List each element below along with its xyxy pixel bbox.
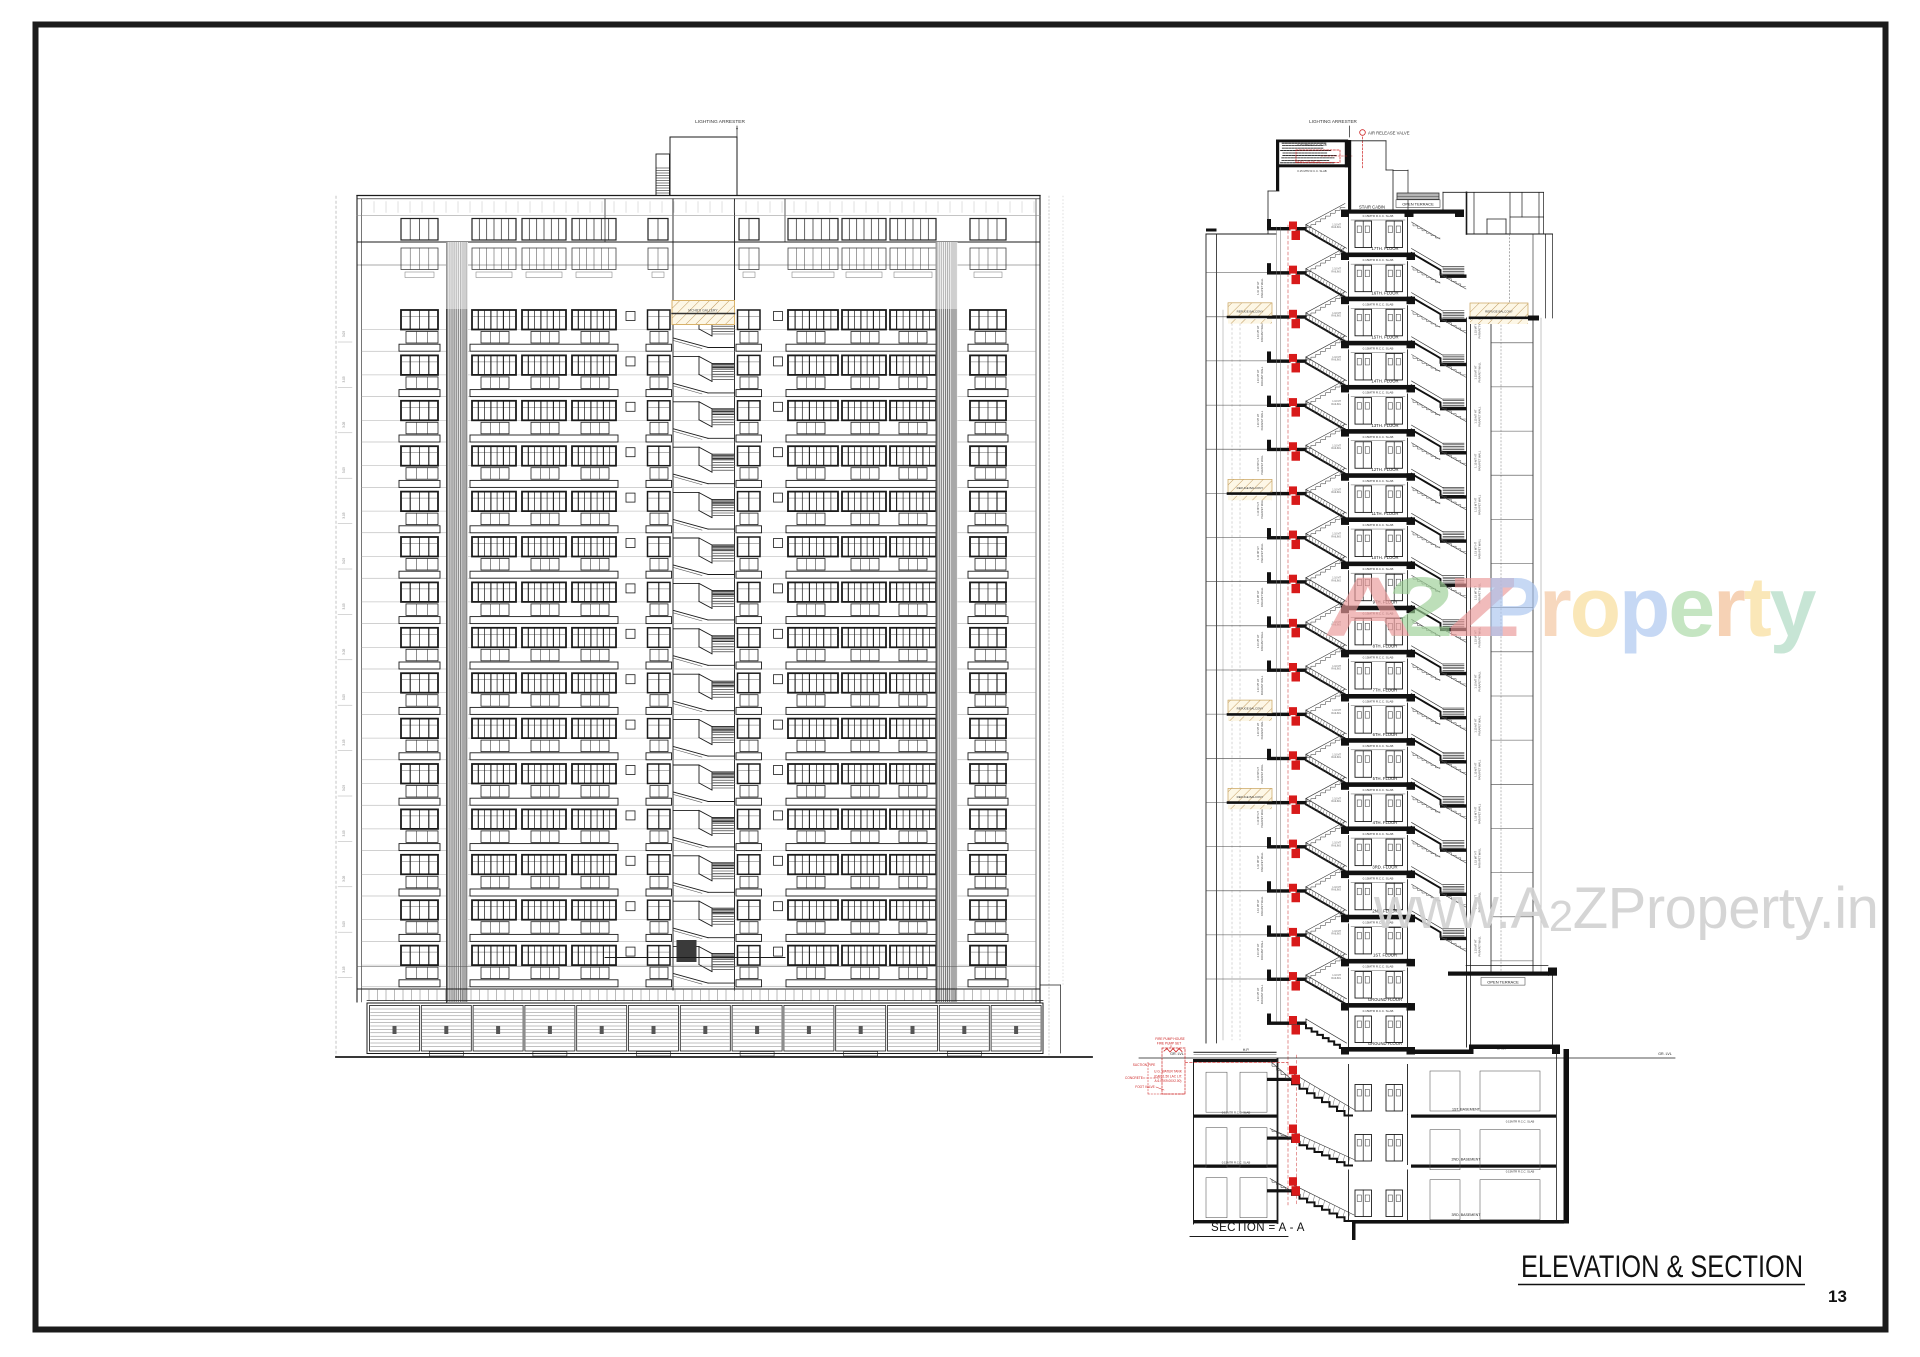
svg-text:LIGHTING ARRESTER: LIGHTING ARRESTER — [695, 119, 745, 125]
svg-text:1.15 MT HT: 1.15 MT HT — [1474, 542, 1478, 556]
svg-text:CONCRETE: CONCRETE — [1125, 1076, 1143, 1080]
svg-text:0.15MTR R.C.C. SLAB: 0.15MTR R.C.C. SLAB — [1222, 1111, 1251, 1115]
svg-text:0.15MTR R.C.C. SLAB: 0.15MTR R.C.C. SLAB — [1363, 214, 1394, 218]
svg-text:PARAPET WALL: PARAPET WALL — [1478, 759, 1482, 780]
svg-text:1.10 MT HT: 1.10 MT HT — [1256, 943, 1260, 957]
svg-text:PARAPET WALL: PARAPET WALL — [1260, 499, 1264, 519]
svg-text:REFUGE BALCONY: REFUGE BALCONY — [1237, 707, 1264, 711]
svg-text:1ST. FLOOR: 1ST. FLOOR — [1373, 953, 1397, 958]
svg-text:OPEN TERRACE: OPEN TERRACE — [1402, 202, 1434, 207]
svg-text:13TH. FLOOR: 13TH. FLOOR — [1372, 423, 1399, 428]
svg-text:REFUGE BALCONY: REFUGE BALCONY — [1237, 795, 1264, 799]
svg-text:▾: ▾ — [736, 126, 738, 131]
svg-text:MCHB'S GALLERY: MCHB'S GALLERY — [688, 309, 718, 313]
svg-text:3.05: 3.05 — [342, 467, 346, 473]
svg-text:1.15 MT HT: 1.15 MT HT — [1474, 806, 1478, 820]
svg-text:GROUND FLOOR: GROUND FLOOR — [1368, 997, 1402, 1002]
svg-text:PARAPET WALL: PARAPET WALL — [1260, 719, 1264, 739]
svg-text:0.15MTR R.C.C. SLAB: 0.15MTR R.C.C. SLAB — [1363, 435, 1394, 439]
svg-text:3.05: 3.05 — [342, 921, 346, 927]
svg-text:2ND. BASEMENT: 2ND. BASEMENT — [1452, 1158, 1482, 1162]
svg-text:1.15 MT HT: 1.15 MT HT — [1474, 497, 1478, 511]
svg-text:SUCTION PIPE: SUCTION PIPE — [1133, 1063, 1156, 1067]
svg-text:1.15 MT HT: 1.15 MT HT — [1474, 762, 1478, 776]
svg-text:0.15MTR R.C.C. SLAB: 0.15MTR R.C.C. SLAB — [1363, 258, 1394, 262]
svg-text:3.05: 3.05 — [342, 830, 346, 836]
svg-text:6TH. FLOOR: 6TH. FLOOR — [1373, 732, 1398, 737]
svg-text:PARAPET WALL: PARAPET WALL — [1260, 984, 1264, 1004]
svg-text:3.05: 3.05 — [342, 966, 346, 972]
svg-text:0.15 MTR R.C.C. SLAB: 0.15 MTR R.C.C. SLAB — [1297, 169, 1327, 173]
svg-text:0.15MTR R.C.C. SLAB: 0.15MTR R.C.C. SLAB — [1363, 700, 1394, 704]
svg-text:11TH. FLOOR: 11TH. FLOOR — [1372, 511, 1399, 516]
svg-text:SECTION = A - A: SECTION = A - A — [1211, 1222, 1305, 1234]
svg-text:14TH. FLOOR: 14TH. FLOOR — [1372, 379, 1399, 384]
svg-text:GR. LVL: GR. LVL — [1170, 1052, 1184, 1056]
svg-text:PARAPET WALL: PARAPET WALL — [1260, 587, 1264, 607]
svg-text:3.05: 3.05 — [342, 331, 346, 337]
svg-text:7TH. FLOOR: 7TH. FLOOR — [1373, 688, 1398, 693]
svg-text:1ST. BASEMENT: 1ST. BASEMENT — [1452, 1108, 1481, 1112]
svg-text:0.15MTR R.C.C. SLAB: 0.15MTR R.C.C. SLAB — [1363, 832, 1394, 836]
svg-text:1.10 MT HT: 1.10 MT HT — [1256, 590, 1260, 604]
svg-text:PARAPET WALL: PARAPET WALL — [1260, 454, 1264, 474]
svg-text:B.B.WT. 2.00 LAC LIT.: B.B.WT. 2.00 LAC LIT. — [1295, 160, 1321, 164]
svg-text:12TH. FLOOR: 12TH. FLOOR — [1372, 467, 1399, 472]
svg-text:1.10 MT HT: 1.10 MT HT — [1256, 458, 1260, 472]
svg-text:0.15MTR R.C.C. SLAB: 0.15MTR R.C.C. SLAB — [1363, 302, 1394, 306]
svg-text:REFUGE BALCONY: REFUGE BALCONY — [1237, 309, 1264, 313]
svg-text:0.15MTR R.C.C. SLAB: 0.15MTR R.C.C. SLAB — [1222, 1161, 1251, 1165]
svg-text:1.15 MT HT: 1.15 MT HT — [1474, 453, 1478, 467]
svg-text:PARAPET WALL: PARAPET WALL — [1260, 763, 1264, 783]
svg-text:A.6.00X9.00X2.00): A.6.00X9.00X2.00) — [1155, 1079, 1182, 1083]
svg-text:OPEN TERRACE: OPEN TERRACE — [1487, 980, 1519, 985]
svg-text:0.15MTR R.C.C. SLAB: 0.15MTR R.C.C. SLAB — [1363, 656, 1394, 660]
svg-text:PARAPET WALL: PARAPET WALL — [1260, 940, 1264, 960]
svg-text:STAIR CABIN: STAIR CABIN — [1359, 205, 1385, 210]
svg-text:1.10 MT HT: 1.10 MT HT — [1256, 634, 1260, 648]
svg-text:1.10 MT HT: 1.10 MT HT — [1256, 281, 1260, 295]
svg-text:0.15MTR R.C.C. SLAB: 0.15MTR R.C.C. SLAB — [1363, 965, 1394, 969]
svg-text:3.05: 3.05 — [342, 558, 346, 564]
svg-text:1.10 MT HT: 1.10 MT HT — [1256, 899, 1260, 913]
svg-text:PARAPET WALL: PARAPET WALL — [1260, 278, 1264, 298]
svg-text:PARAPET WALL: PARAPET WALL — [1478, 406, 1482, 427]
svg-text:0.15MTR R.C.C. SLAB: 0.15MTR R.C.C. SLAB — [1363, 391, 1394, 395]
svg-text:PARAPET WALL: PARAPET WALL — [1478, 803, 1482, 824]
svg-text:PARAPET WALL: PARAPET WALL — [1260, 366, 1264, 386]
svg-text:AIR RELEASE VALVE: AIR RELEASE VALVE — [1368, 131, 1410, 136]
svg-text:3.05: 3.05 — [342, 421, 346, 427]
svg-text:1.15 MT HT: 1.15 MT HT — [1474, 409, 1478, 423]
svg-text:1.10 MT HT: 1.10 MT HT — [1256, 767, 1260, 781]
svg-text:PARAPET WALL: PARAPET WALL — [1478, 847, 1482, 868]
svg-text:3.05: 3.05 — [342, 603, 346, 609]
svg-text:PARAPET WALL: PARAPET WALL — [1260, 808, 1264, 828]
svg-text:A: A — [1323, 561, 1413, 654]
svg-text:PARAPET WALL: PARAPET WALL — [1260, 322, 1264, 342]
svg-text:GR. LVL: GR. LVL — [1658, 1052, 1672, 1056]
svg-text:0.15MTR R.C.C. SLAB: 0.15MTR R.C.C. SLAB — [1363, 1009, 1394, 1013]
svg-text:1.10 MT HT: 1.10 MT HT — [1256, 369, 1260, 383]
svg-text:0.15MTR R.C.C. SLAB: 0.15MTR R.C.C. SLAB — [1363, 479, 1394, 483]
svg-text:1.15 MT HT: 1.15 MT HT — [1474, 851, 1478, 865]
svg-text:3.05: 3.05 — [342, 648, 346, 654]
svg-text:FIRE PUMP SET: FIRE PUMP SET — [1157, 1042, 1181, 1046]
svg-text:www.A2ZProperty.in: www.A2ZProperty.in — [1373, 876, 1878, 941]
svg-text:REFUGE BALCONY: REFUGE BALCONY — [1237, 486, 1264, 490]
svg-text:1.10 MT HT: 1.10 MT HT — [1256, 678, 1260, 692]
svg-text:5TH. FLOOR: 5TH. FLOOR — [1373, 776, 1398, 781]
svg-text:1.10 MT HT: 1.10 MT HT — [1256, 855, 1260, 869]
svg-text:PARAPET WALL: PARAPET WALL — [1478, 362, 1482, 383]
svg-text:3.05: 3.05 — [342, 785, 346, 791]
svg-text:1.10 MT HT: 1.10 MT HT — [1256, 502, 1260, 516]
svg-text:3.05: 3.05 — [342, 376, 346, 382]
svg-text:1.10 MT HT: 1.10 MT HT — [1256, 811, 1260, 825]
svg-text:1.10 MT HT: 1.10 MT HT — [1256, 325, 1260, 339]
svg-text:ELEVATION & SECTION: ELEVATION & SECTION — [1521, 1248, 1803, 1284]
svg-text:Property: Property — [1485, 560, 1817, 654]
svg-text:1.15 MT HT: 1.15 MT HT — [1474, 718, 1478, 732]
svg-text:U.G. WATER TANK: U.G. WATER TANK — [1154, 1070, 1183, 1074]
svg-text:3.05: 3.05 — [342, 512, 346, 518]
svg-text:1.10 MT HT: 1.10 MT HT — [1256, 413, 1260, 427]
svg-text:0.15MTR R.C.C. SLAB: 0.15MTR R.C.C. SLAB — [1363, 347, 1394, 351]
svg-text:3.05: 3.05 — [342, 694, 346, 700]
svg-text:PARAPET WALL: PARAPET WALL — [1260, 410, 1264, 430]
svg-text:4TH. FLOOR: 4TH. FLOOR — [1373, 820, 1398, 825]
svg-text:PARAPET WALL: PARAPET WALL — [1260, 631, 1264, 651]
svg-text:0.15MTR R.C.C. SLAB: 0.15MTR R.C.C. SLAB — [1363, 523, 1394, 527]
svg-text:PARAPET WALL: PARAPET WALL — [1478, 671, 1482, 692]
svg-text:PARAPET WALL: PARAPET WALL — [1260, 852, 1264, 872]
svg-text:1.10 MT HT: 1.10 MT HT — [1256, 722, 1260, 736]
svg-text:13: 13 — [1828, 1287, 1847, 1306]
svg-text:0.15MTR R.C.C. SLAB: 0.15MTR R.C.C. SLAB — [1506, 1170, 1535, 1174]
svg-text:PARAPET WALL: PARAPET WALL — [1478, 538, 1482, 559]
svg-text:GROUND FLOOR: GROUND FLOOR — [1368, 1041, 1402, 1046]
svg-text:PARAPET WALL: PARAPET WALL — [1260, 543, 1264, 563]
svg-text:3.05: 3.05 — [342, 875, 346, 881]
svg-text:FOOT VALVE: FOOT VALVE — [1135, 1085, 1154, 1089]
svg-text:PARAPET WALL: PARAPET WALL — [1260, 675, 1264, 695]
svg-text:LIGHTING ARRESTER: LIGHTING ARRESTER — [1309, 119, 1357, 124]
svg-text:1.10 MT HT: 1.10 MT HT — [1256, 546, 1260, 560]
svg-text:0.15 MTR R.C.C. SLAB: 0.15 MTR R.C.C. SLAB — [1297, 143, 1327, 147]
svg-text:17TH. FLOOR: 17TH. FLOOR — [1372, 246, 1399, 251]
svg-text:1.15 MT HT: 1.15 MT HT — [1474, 674, 1478, 688]
svg-text:1.15 MT HT: 1.15 MT HT — [1474, 939, 1478, 953]
svg-text:16TH. FLOOR: 16TH. FLOOR — [1372, 290, 1399, 295]
svg-text:PARAPET WALL: PARAPET WALL — [1260, 896, 1264, 916]
svg-text:H.P.: H.P. — [1243, 1048, 1250, 1052]
svg-text:3RD. BASEMENT: 3RD. BASEMENT — [1452, 1213, 1482, 1217]
svg-text:15TH. FLOOR: 15TH. FLOOR — [1372, 335, 1399, 340]
svg-text:0.15MTR R.C.C. SLAB: 0.15MTR R.C.C. SLAB — [1363, 744, 1394, 748]
svg-text:3RD. FLOOR: 3RD. FLOOR — [1372, 864, 1397, 869]
svg-text:FIRE PUMP HOUSE: FIRE PUMP HOUSE — [1155, 1037, 1185, 1041]
svg-text:PARAPET WALL: PARAPET WALL — [1478, 494, 1482, 515]
svg-text:PARAPET WALL: PARAPET WALL — [1478, 715, 1482, 736]
svg-text:3.05: 3.05 — [342, 739, 346, 745]
svg-text:1.15 MT HT: 1.15 MT HT — [1474, 365, 1478, 379]
svg-text:REFUGE BALCONY: REFUGE BALCONY — [1485, 310, 1513, 314]
svg-text:PARAPET WALL: PARAPET WALL — [1478, 450, 1482, 471]
svg-text:0.15MTR R.C.C. SLAB: 0.15MTR R.C.C. SLAB — [1363, 788, 1394, 792]
svg-text:0.15MTR R.C.C. SLAB: 0.15MTR R.C.C. SLAB — [1506, 1120, 1535, 1124]
svg-text:1.10 MT HT: 1.10 MT HT — [1256, 987, 1260, 1001]
